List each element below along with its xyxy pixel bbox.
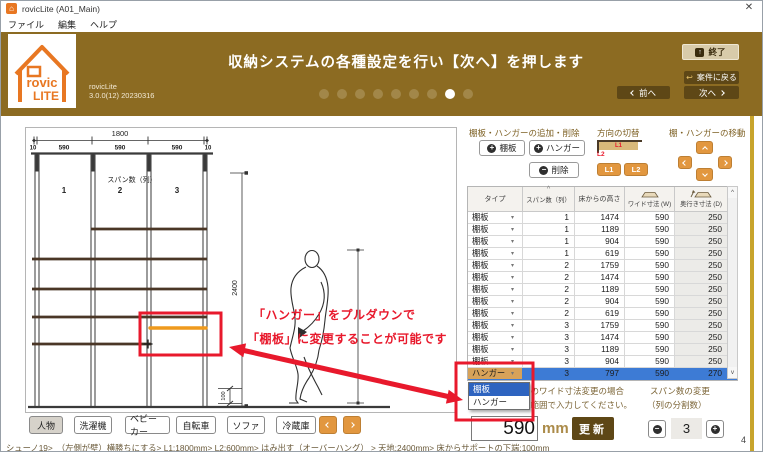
type-combo[interactable]: 棚板▾ [468, 248, 523, 260]
dim-height: 2400 [232, 280, 239, 296]
direction-l2-label: L2 [597, 151, 605, 158]
table-row[interactable]: 棚板▾1619590250 [468, 248, 737, 260]
width-cell: 590 [625, 332, 675, 344]
back-to-case-label: 案件に戻る [697, 72, 737, 83]
span-cell: 3 [523, 320, 575, 332]
type-combo[interactable]: 棚板▾ [468, 284, 523, 296]
type-combo[interactable]: 棚板▾ [468, 296, 523, 308]
prev-button[interactable]: 前へ [617, 86, 670, 99]
add-shelf-button[interactable]: + 棚板 [479, 140, 525, 156]
progress-dot [319, 89, 329, 99]
progress-dot [445, 89, 455, 99]
app-icon: ⌂ [6, 3, 17, 14]
progress-dot [427, 89, 437, 99]
span-cell: 2 [523, 296, 575, 308]
header-depth: 奥行き寸法 (D) [675, 187, 728, 212]
logo-text-rovic: rovic [26, 75, 57, 90]
table-row[interactable]: 棚板▾1904590250 [468, 236, 737, 248]
right-gold-border [750, 116, 754, 452]
table-row[interactable]: 棚板▾21474590250 [468, 272, 737, 284]
chevron-left-icon [630, 90, 636, 96]
shelf-depth-icon [690, 190, 712, 198]
table-row[interactable]: 棚板▾21189590250 [468, 284, 737, 296]
depth-cell: 250 [675, 320, 728, 332]
height-cell: 1189 [575, 284, 625, 296]
move-right-button[interactable] [718, 156, 732, 169]
move-up-button[interactable] [696, 141, 713, 154]
direction-title: 方向の切替 [597, 127, 640, 139]
chevron-down-icon: ▾ [511, 369, 514, 380]
width-cell: 590 [625, 344, 675, 356]
app-version-block: rovicLite 3.0.0(12) 20230316 [89, 82, 154, 100]
height-cell: 1189 [575, 344, 625, 356]
type-combo[interactable]: 棚板▾ [468, 356, 523, 368]
depth-cell: 250 [675, 212, 728, 224]
type-combo[interactable]: 棚板▾ [468, 308, 523, 320]
span-title: スパン数（列） [107, 175, 156, 184]
annotation-line2: 「棚板」に変更することが可能です [247, 330, 447, 347]
menu-edit[interactable]: 編集 [58, 18, 76, 31]
chevron-down-icon: ▾ [511, 249, 514, 260]
height-cell: 619 [575, 308, 625, 320]
chevron-down-icon: ▾ [511, 297, 514, 308]
header-height: 床からの高さ [575, 187, 625, 212]
dim-seg-left: 10 [30, 146, 37, 152]
span-cell: 1 [523, 224, 575, 236]
title-bar: ⌂ rovicLite (A01_Main) ✕ [1, 1, 763, 17]
plus-icon: + [534, 144, 543, 153]
add-hanger-label: ハンガー [546, 142, 580, 154]
width-cell: 590 [625, 356, 675, 368]
width-cell: 590 [625, 272, 675, 284]
move-left-button[interactable] [678, 156, 692, 169]
status-bar: シューノ19> （左側が壁）横勝ちにする> L1:1800mm> L2:600m… [6, 442, 549, 452]
span-cell: 3 [523, 368, 575, 380]
width-cell: 590 [625, 248, 675, 260]
type-combo[interactable]: 棚板▾ [468, 224, 523, 236]
exit-label: 終了 [708, 46, 725, 58]
add-remove-title: 棚板・ハンガーの追加・削除 [469, 127, 580, 139]
height-cell: 1759 [575, 260, 625, 272]
move-title: 棚・ハンガーの移動 [669, 127, 746, 139]
chevron-down-icon [702, 171, 708, 177]
span-number-1: 1 [62, 186, 67, 195]
minus-icon: − [653, 425, 662, 434]
dropdown-option[interactable]: ハンガー [469, 396, 529, 409]
exit-button[interactable]: ↑ 終了 [682, 44, 739, 60]
span-plus-button[interactable]: + [706, 420, 724, 438]
chevron-down-icon: ▾ [511, 285, 514, 296]
plus-icon: + [487, 144, 496, 153]
type-combo[interactable]: 棚板▾ [468, 260, 523, 272]
chevron-down-icon: ▾ [511, 225, 514, 236]
dim-seg-2: 590 [115, 145, 126, 152]
chevron-right-icon [719, 90, 725, 96]
chevron-down-icon: ▾ [511, 273, 514, 284]
update-button[interactable]: 更新 [572, 417, 614, 440]
menu-help[interactable]: ヘルプ [90, 18, 117, 31]
type-combo[interactable]: 棚板▾ [468, 236, 523, 248]
menu-bar: ファイル 編集 ヘルプ [1, 17, 763, 32]
object-button-1[interactable]: 人物 [29, 416, 63, 434]
chevron-down-icon: ▾ [511, 309, 514, 320]
table-header: タイプ ^ スパン数（列） 床からの高さ ワイド寸法 (W) 奥行き寸法 (D) [468, 187, 737, 212]
height-cell: 797 [575, 368, 625, 380]
span-note-line2: （列の分割数） [647, 399, 707, 411]
depth-cell: 250 [675, 344, 728, 356]
width-cell: 590 [625, 296, 675, 308]
span-cell: 3 [523, 332, 575, 344]
header-width: ワイド寸法 (W) [625, 187, 675, 212]
delete-button[interactable]: − 削除 [529, 162, 579, 178]
span-cell: 3 [523, 356, 575, 368]
header-span: ^ スパン数（列） [523, 187, 575, 212]
minus-icon: − [539, 166, 548, 175]
chevron-down-icon: ▾ [511, 213, 514, 224]
table-row[interactable]: 棚板▾31189590250 [468, 344, 737, 356]
table-row[interactable]: 棚板▾11189590250 [468, 224, 737, 236]
app-header: rovic LITE rovicLite 3.0.0(12) 20230316 … [1, 32, 763, 116]
height-cell: 1474 [575, 332, 625, 344]
next-label: 次へ [699, 87, 716, 99]
span-note-line1: スパン数の変更 [650, 385, 710, 397]
object-button-2[interactable]: 洗濯機 [74, 416, 112, 434]
span-cell: 2 [523, 284, 575, 296]
header-type: タイプ [468, 187, 523, 212]
close-icon[interactable]: ✕ [742, 2, 756, 13]
sort-up-icon: ^ [547, 186, 550, 193]
width-cell: 590 [625, 368, 675, 380]
objects-next-button[interactable] [343, 416, 361, 434]
table-row[interactable]: ハンガー▾3797590270 [468, 368, 737, 380]
dim-seg-right: 10 [205, 146, 212, 152]
dim-seg-3: 590 [172, 145, 183, 152]
dim-total-width: 1800 [112, 129, 129, 138]
depth-cell: 270 [675, 368, 728, 380]
shelf-width-icon [639, 190, 661, 198]
table-row[interactable]: 棚板▾31759590250 [468, 320, 737, 332]
app-logo: rovic LITE [8, 34, 76, 108]
progress-dots [319, 89, 473, 99]
span-number-3: 3 [175, 186, 180, 195]
height-cell: 904 [575, 296, 625, 308]
span-cell: 1 [523, 248, 575, 260]
span-count-value: 3 [671, 418, 702, 439]
span-minus-button[interactable]: − [648, 420, 666, 438]
width-cell: 590 [625, 284, 675, 296]
depth-cell: 250 [675, 356, 728, 368]
type-combo[interactable]: 棚板▾ [468, 344, 523, 356]
type-combo[interactable]: 棚板▾ [468, 320, 523, 332]
app-window: ⌂ rovicLite (A01_Main) ✕ ファイル 編集 ヘルプ rov… [0, 0, 763, 452]
height-cell: 619 [575, 248, 625, 260]
width-cell: 590 [625, 308, 675, 320]
add-hanger-button[interactable]: + ハンガー [529, 140, 585, 156]
span-cell: 2 [523, 260, 575, 272]
scroll-up-icon[interactable]: ^ [728, 187, 737, 198]
chevron-right-icon [349, 422, 355, 428]
height-cell: 1474 [575, 212, 625, 224]
menu-file[interactable]: ファイル [8, 18, 44, 31]
height-cell: 1474 [575, 272, 625, 284]
dropdown-option[interactable]: 棚板 [469, 383, 529, 396]
table-row[interactable]: 棚板▾3904590250 [468, 356, 737, 368]
chevron-right-icon [722, 160, 728, 166]
type-dropdown-list: 棚板ハンガー [468, 382, 530, 410]
mm-unit-label: mm [542, 420, 569, 437]
return-icon: ↩ [686, 74, 693, 82]
chevron-left-icon [682, 160, 688, 166]
table-row[interactable]: 棚板▾31474590250 [468, 332, 737, 344]
shelf-table: タイプ ^ スパン数（列） 床からの高さ ワイド寸法 (W) 奥行き寸法 (D)… [467, 186, 738, 381]
table-row[interactable]: 棚板▾11474590250 [468, 212, 737, 224]
width-cell: 590 [625, 224, 675, 236]
progress-dot [355, 89, 365, 99]
l2-button[interactable]: L2 [624, 163, 648, 176]
page-number: 4 [741, 435, 746, 445]
plus-icon: + [711, 425, 720, 434]
object-button-3[interactable]: ベビーカー [125, 416, 170, 434]
depth-cell: 250 [675, 236, 728, 248]
object-button-6[interactable]: 冷蔵庫 [276, 416, 316, 434]
span-cell: 1 [523, 236, 575, 248]
shelf-drawing: 1800 10 590 590 590 10 スパン数（列） 1 2 3 [25, 127, 457, 413]
width-cell: 590 [625, 320, 675, 332]
chevron-down-icon: ▾ [511, 357, 514, 368]
chevron-up-icon [702, 146, 708, 152]
exit-icon: ↑ [695, 48, 704, 57]
height-cell: 1189 [575, 224, 625, 236]
width-cell: 590 [625, 236, 675, 248]
depth-cell: 250 [675, 284, 728, 296]
depth-cell: 250 [675, 332, 728, 344]
height-cell: 1759 [575, 320, 625, 332]
object-button-4[interactable]: 自転車 [176, 416, 216, 434]
type-combo[interactable]: 棚板▾ [468, 272, 523, 284]
depth-cell: 250 [675, 272, 728, 284]
add-shelf-label: 棚板 [499, 142, 516, 154]
dim-support-bottom: 100 [221, 391, 227, 400]
depth-cell: 250 [675, 260, 728, 272]
chevron-down-icon: ▾ [511, 321, 514, 332]
page-title: 収納システムの各種設定を行い【次へ】を押します [201, 51, 611, 72]
window-title: rovicLite (A01_Main) [22, 4, 100, 14]
depth-cell: 250 [675, 224, 728, 236]
back-to-case-button[interactable]: ↩ 案件に戻る [684, 71, 739, 84]
progress-dot [409, 89, 419, 99]
shelf-table-rows: 棚板▾11474590250棚板▾11189590250棚板▾190459025… [468, 212, 737, 380]
app-name: rovicLite [89, 82, 154, 91]
span-number-2: 2 [118, 186, 123, 195]
chevron-down-icon: ▾ [511, 261, 514, 272]
chevron-down-icon: ▾ [511, 345, 514, 356]
depth-cell: 250 [675, 248, 728, 260]
app-version: 3.0.0(12) 20230316 [89, 91, 154, 100]
span-cell: 3 [523, 344, 575, 356]
span-cell: 1 [523, 212, 575, 224]
width-cell: 590 [625, 212, 675, 224]
progress-dot [373, 89, 383, 99]
l1-button[interactable]: L1 [597, 163, 621, 176]
dim-seg-1: 590 [59, 145, 70, 152]
type-combo[interactable]: 棚板▾ [468, 332, 523, 344]
table-row[interactable]: 棚板▾21759590250 [468, 260, 737, 272]
depth-cell: 250 [675, 308, 728, 320]
width-input[interactable]: 590 [471, 416, 538, 441]
span-cell: 2 [523, 308, 575, 320]
type-combo[interactable]: 棚板▾ [468, 212, 523, 224]
width-cell: 590 [625, 260, 675, 272]
type-combo[interactable]: ハンガー▾ [468, 368, 523, 380]
logo-text-lite: LITE [33, 89, 59, 103]
move-down-button[interactable] [696, 168, 713, 181]
annotation-line1: 「ハンガー」をプルダウンで [253, 306, 416, 323]
progress-dot [337, 89, 347, 99]
height-cell: 904 [575, 356, 625, 368]
progress-dot [463, 89, 473, 99]
delete-label: 削除 [551, 164, 568, 176]
chevron-down-icon: ▾ [511, 333, 514, 344]
height-cell: 904 [575, 236, 625, 248]
table-scrollbar[interactable]: ^ v [727, 186, 738, 379]
table-row[interactable]: 棚板▾2904590250 [468, 296, 737, 308]
next-button[interactable]: 次へ [684, 86, 739, 99]
drawing-panel-border [26, 128, 457, 413]
object-button-5[interactable]: ソファ [227, 416, 265, 434]
table-row[interactable]: 棚板▾2619590250 [468, 308, 737, 320]
logo-house-roof [16, 47, 68, 74]
scroll-down-icon[interactable]: v [728, 367, 737, 378]
direction-l1-bar: L1 [599, 142, 638, 150]
objects-prev-button[interactable] [319, 416, 337, 434]
prev-label: 前へ [639, 87, 656, 99]
chevron-left-icon [325, 422, 331, 428]
progress-dot [391, 89, 401, 99]
depth-cell: 250 [675, 296, 728, 308]
chevron-down-icon: ▾ [511, 237, 514, 248]
span-cell: 2 [523, 272, 575, 284]
